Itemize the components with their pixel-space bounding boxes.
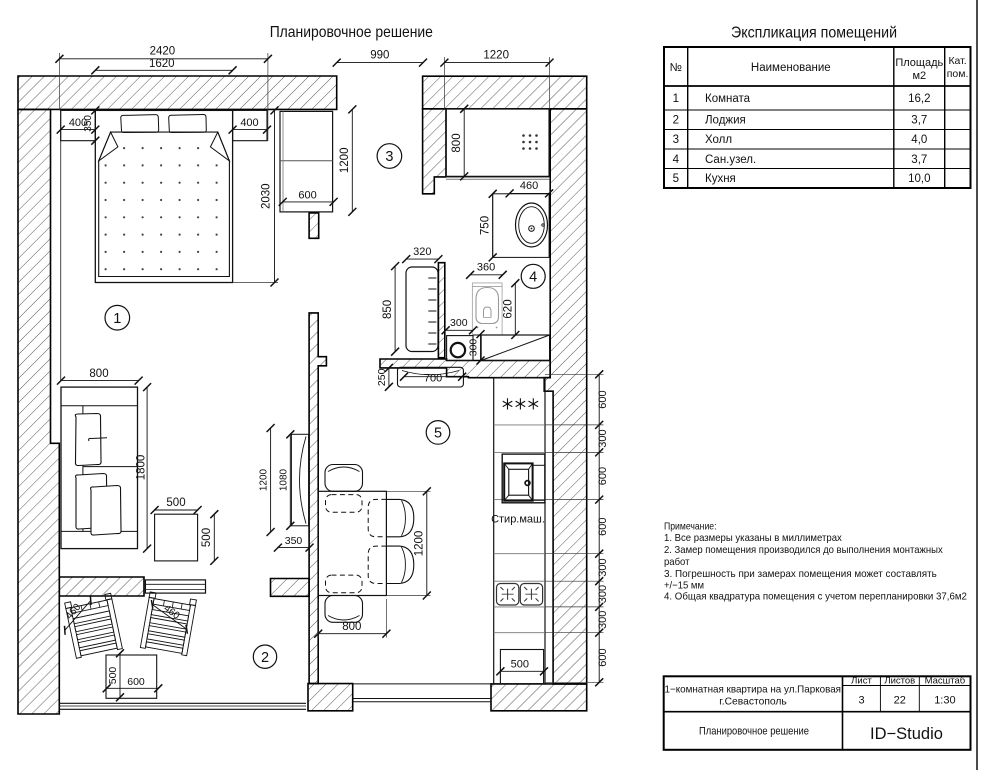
svg-text:500: 500 xyxy=(511,658,529,670)
svg-text:1800: 1800 xyxy=(135,455,147,481)
svg-text:пом.: пом. xyxy=(947,68,969,80)
svg-text:работ: работ xyxy=(664,556,690,568)
svg-text:1−комнатная квартира на ул.: 1−комнатная квартира на ул.Парковая xyxy=(665,685,842,696)
svg-text:3: 3 xyxy=(673,134,679,146)
svg-text:300: 300 xyxy=(597,429,609,447)
svg-text:1200: 1200 xyxy=(414,531,426,557)
svg-text:Стир.маш.: Стир.маш. xyxy=(491,514,545,526)
svg-text:350: 350 xyxy=(83,115,94,132)
svg-text:800: 800 xyxy=(89,368,108,380)
svg-text:300: 300 xyxy=(597,611,609,629)
svg-text:500: 500 xyxy=(107,667,119,685)
svg-text:5: 5 xyxy=(434,426,442,442)
svg-text:Планировочное решение: Планировочное решение xyxy=(699,726,809,738)
svg-text:1200: 1200 xyxy=(339,148,351,174)
svg-text:300: 300 xyxy=(468,339,480,357)
svg-text:2420: 2420 xyxy=(150,46,176,58)
svg-text:Холл: Холл xyxy=(705,134,732,146)
svg-text:800: 800 xyxy=(342,621,361,633)
svg-text:850: 850 xyxy=(382,300,394,319)
svg-text:1. Все размеры указаны в милли: 1. Все размеры указаны в миллиметрах xyxy=(664,532,842,544)
svg-text:2: 2 xyxy=(673,115,679,127)
svg-text:600: 600 xyxy=(597,648,609,666)
svg-text:Листов: Листов xyxy=(884,676,915,687)
svg-text:620: 620 xyxy=(502,299,514,318)
svg-text:Лоджия: Лоджия xyxy=(705,115,746,127)
svg-text:2: 2 xyxy=(261,650,269,666)
svg-text:Комната: Комната xyxy=(705,93,751,105)
svg-text:350: 350 xyxy=(285,535,303,547)
svg-text:300: 300 xyxy=(450,317,468,329)
svg-text:16,2: 16,2 xyxy=(908,93,930,105)
svg-text:1620: 1620 xyxy=(149,58,175,70)
svg-text:3. Погрешность при замерах пом: 3. Погрешность при замерах помещения мож… xyxy=(664,568,937,580)
svg-text:600: 600 xyxy=(597,518,609,536)
svg-text:10,0: 10,0 xyxy=(908,173,930,185)
svg-text:1:30: 1:30 xyxy=(934,695,955,707)
svg-text:460: 460 xyxy=(520,180,538,192)
svg-text:320: 320 xyxy=(413,246,431,258)
svg-text:800: 800 xyxy=(451,133,463,152)
svg-text:300: 300 xyxy=(597,585,609,603)
svg-text:400: 400 xyxy=(240,117,258,129)
svg-text:4. Общая квадратура помещения: 4. Общая квадратура помещения с учетом п… xyxy=(664,591,967,603)
svg-text:600: 600 xyxy=(127,676,145,688)
svg-text:1220: 1220 xyxy=(483,50,509,62)
svg-text:1: 1 xyxy=(113,311,121,327)
svg-text:700: 700 xyxy=(424,373,442,385)
svg-text:1: 1 xyxy=(673,93,679,105)
svg-text:3: 3 xyxy=(858,695,864,707)
svg-text:Лист: Лист xyxy=(851,676,872,687)
svg-text:3,7: 3,7 xyxy=(911,115,927,127)
svg-text:1200: 1200 xyxy=(259,468,270,491)
svg-text:250: 250 xyxy=(376,368,388,386)
svg-text:г.Севастополь: г.Севастополь xyxy=(719,697,787,708)
svg-text:ID−Studio: ID−Studio xyxy=(870,725,943,743)
svg-text:500: 500 xyxy=(201,528,213,547)
svg-text:5: 5 xyxy=(673,173,679,185)
svg-text:4: 4 xyxy=(673,154,680,166)
svg-text:600: 600 xyxy=(298,189,316,201)
svg-text:750: 750 xyxy=(479,216,491,235)
svg-text:Примечание:: Примечание: xyxy=(664,521,717,533)
svg-text:Наименование: Наименование xyxy=(751,62,831,74)
svg-text:990: 990 xyxy=(370,50,389,62)
svg-text:360: 360 xyxy=(477,262,495,274)
svg-text:4: 4 xyxy=(529,270,537,286)
svg-text:600: 600 xyxy=(597,390,609,408)
svg-text:№: № xyxy=(670,62,682,74)
svg-text:2. Замер помещения производилс: 2. Замер помещения производился до выпол… xyxy=(664,544,943,556)
svg-text:Экспликация помещений: Экспликация помещений xyxy=(731,25,897,42)
svg-text:Сан.узел.: Сан.узел. xyxy=(705,154,756,166)
svg-text:Кухня: Кухня xyxy=(705,173,736,185)
svg-text:2030: 2030 xyxy=(260,183,272,209)
svg-text:м2: м2 xyxy=(912,70,926,82)
svg-text:4,0: 4,0 xyxy=(911,134,927,146)
svg-text:3,7: 3,7 xyxy=(911,154,927,166)
svg-text:600: 600 xyxy=(597,467,609,485)
svg-text:Масштаб: Масштаб xyxy=(925,676,966,687)
svg-text:Кат.: Кат. xyxy=(948,55,966,67)
svg-text:3: 3 xyxy=(385,149,393,165)
svg-text:22: 22 xyxy=(894,695,906,707)
svg-text:Площадь: Площадь xyxy=(895,57,943,69)
svg-text:Планировочное решение: Планировочное решение xyxy=(270,24,433,41)
svg-text:1080: 1080 xyxy=(279,468,290,491)
svg-text:500: 500 xyxy=(166,497,185,509)
svg-text:300: 300 xyxy=(597,558,609,576)
